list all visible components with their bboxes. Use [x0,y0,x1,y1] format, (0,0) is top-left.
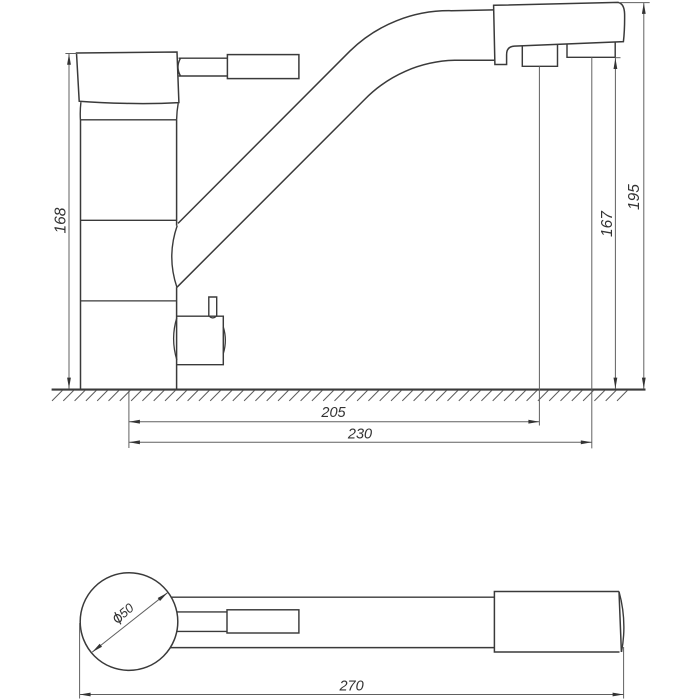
svg-text:270: 270 [338,679,363,695]
svg-text:50: 50 [116,600,137,621]
svg-text:205: 205 [320,405,346,421]
svg-text:230: 230 [347,427,372,443]
svg-text:168: 168 [53,207,70,233]
svg-text:167: 167 [599,210,616,237]
svg-text:195: 195 [626,184,643,210]
